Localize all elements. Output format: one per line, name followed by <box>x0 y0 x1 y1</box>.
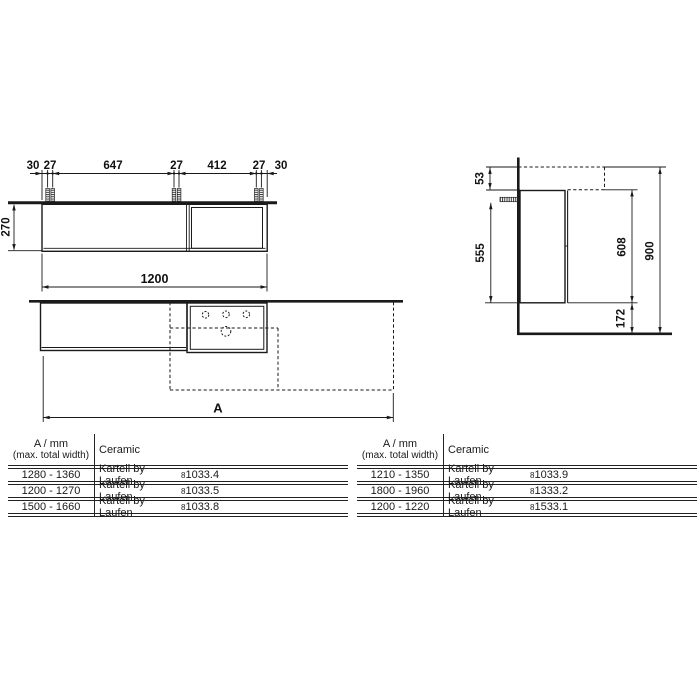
width-range: 1800 - 1960 <box>357 485 443 497</box>
tap-hole-icon <box>223 311 230 318</box>
dim-label-172: 172 <box>616 309 628 328</box>
dim-label-53: 53 <box>475 172 487 185</box>
dim-label-412: 412 <box>207 160 226 172</box>
dim-label-270: 270 <box>1 217 13 236</box>
width-range: 1210 - 1350 <box>357 469 443 481</box>
dim-label-608: 608 <box>617 237 629 257</box>
tap-hole-icon <box>202 312 209 319</box>
ceramic-dashed-outline <box>518 167 604 190</box>
ceramic-variable-width-dashed <box>170 302 394 390</box>
brand-name: Kartell by Laufen <box>448 495 530 519</box>
cabinet-side <box>520 191 568 303</box>
variant-table-right: A / mm (max. total width) Ceramic 1210 -… <box>357 434 697 517</box>
col1-header-line2: (max. total width) <box>8 450 94 462</box>
plan-view-drawing: A <box>0 290 430 430</box>
technical-drawing-sheet: 30 27 647 27 412 27 30 270 1200 <box>0 0 700 700</box>
dim-label-27-c: 27 <box>253 160 266 172</box>
side-view-drawing: 53 555 608 900 172 <box>460 140 700 360</box>
dim-555: 555 <box>475 203 493 303</box>
brand-name: Kartell by Laufen <box>99 495 181 519</box>
col1-header-line1: A / mm <box>8 438 94 450</box>
table-column-divider <box>94 434 95 517</box>
table-row: 1200 - 1220 Kartell by Laufen81533.1 <box>357 500 697 514</box>
open-shelf-compartment <box>192 208 263 249</box>
variant-table-left: A / mm (max. total width) Ceramic 1280 -… <box>8 434 348 517</box>
article-code: 81033.8 <box>181 501 219 514</box>
dim-53: 53 <box>475 168 492 190</box>
tap-hole-icon <box>243 311 250 318</box>
dim-label-1200: 1200 <box>141 272 169 286</box>
width-range: 1500 - 1660 <box>8 501 94 513</box>
table-header: A / mm (max. total width) Ceramic <box>357 434 697 466</box>
dim-172: 172 <box>616 303 662 333</box>
col2-header: Ceramic <box>94 444 348 456</box>
dim-label-900: 900 <box>645 241 657 260</box>
dim-label-647: 647 <box>103 160 122 172</box>
dim-label-A: A <box>213 401 223 416</box>
table-header: A / mm (max. total width) Ceramic <box>8 434 348 466</box>
dim-608: 608 <box>617 190 634 303</box>
front-top-dimension-chain: 30 27 647 27 412 27 30 <box>27 160 288 200</box>
col1-header-line1: A / mm <box>357 438 443 450</box>
front-width-dimension: 1200 <box>42 254 267 292</box>
dim-A: A <box>43 356 393 422</box>
wall-anchor-screw-icon <box>500 197 518 201</box>
width-range: 1200 - 1220 <box>357 501 443 513</box>
front-view-drawing: 30 27 647 27 412 27 30 270 1200 <box>0 140 300 300</box>
mounting-screw-icons <box>46 189 263 203</box>
dim-label-27-a: 27 <box>44 160 57 172</box>
dim-label-27-b: 27 <box>170 160 183 172</box>
col1-header-line2: (max. total width) <box>357 450 443 462</box>
width-range: 1280 - 1360 <box>8 469 94 481</box>
dim-label-30-left: 30 <box>27 160 40 172</box>
table-column-divider <box>443 434 444 517</box>
side-extension-lines <box>485 167 666 303</box>
dim-label-30-right: 30 <box>275 160 288 172</box>
article-code: 81533.1 <box>530 501 568 514</box>
cabinet-front <box>42 204 267 251</box>
cabinet-plan <box>41 303 188 351</box>
dim-label-555: 555 <box>475 243 487 263</box>
table-row: 1500 - 1660 Kartell by Laufen81033.8 <box>8 500 348 514</box>
width-range: 1200 - 1270 <box>8 485 94 497</box>
dim-900: 900 <box>645 168 662 334</box>
col2-header: Ceramic <box>443 444 697 456</box>
front-height-dimension: 270 <box>1 204 43 251</box>
